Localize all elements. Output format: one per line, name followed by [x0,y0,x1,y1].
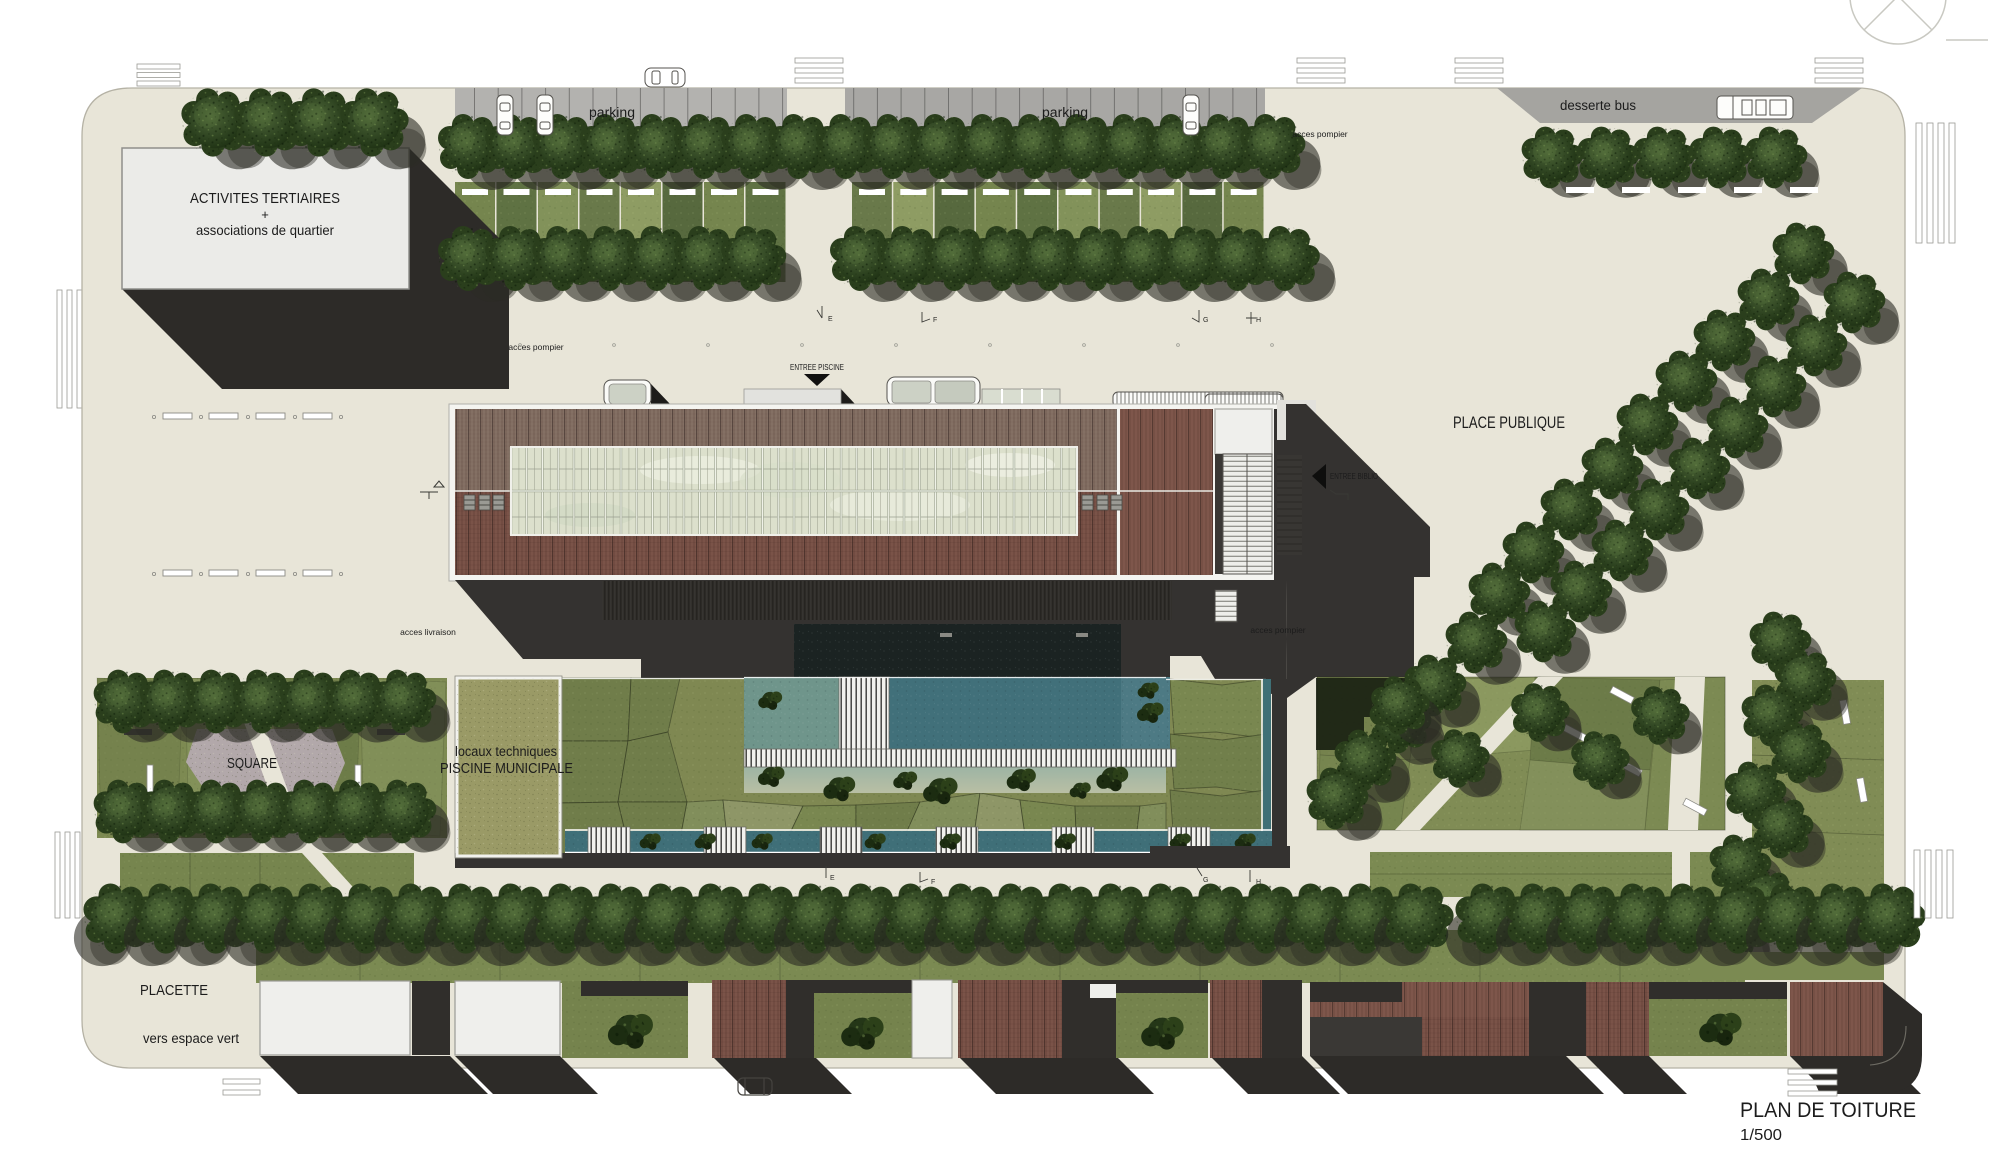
svg-text:parking: parking [589,105,635,120]
svg-text:ENTREE BIBLIO: ENTREE BIBLIO [1330,472,1378,481]
svg-text:vers espace vert: vers espace vert [143,1031,239,1046]
svg-text:G: G [1203,317,1208,324]
svg-text:acces pompier: acces pompier [1250,625,1305,635]
svg-text:associations de quartier: associations de quartier [196,222,334,238]
svg-text:ACTIVITES TERTIAIRES: ACTIVITES TERTIAIRES [190,190,340,207]
svg-text:1/500: 1/500 [1740,1127,1782,1144]
svg-text:acces pompier: acces pompier [508,342,563,352]
svg-text:E: E [830,875,835,882]
svg-text:H: H [1256,317,1261,324]
svg-text:locaux techniques: locaux techniques [455,744,557,759]
svg-text:F: F [931,879,935,886]
svg-text:+: + [261,207,269,222]
svg-text:G: G [1203,877,1208,884]
svg-text:desserte bus: desserte bus [1560,98,1636,113]
svg-text:H: H [1256,879,1261,886]
svg-text:acces pompier: acces pompier [1292,129,1347,139]
svg-text:E: E [828,316,833,323]
svg-text:SQUARE: SQUARE [227,755,277,772]
svg-text:PLACE PUBLIQUE: PLACE PUBLIQUE [1453,413,1565,432]
svg-text:PLACETTE: PLACETTE [140,983,208,999]
svg-text:PLAN DE TOITURE: PLAN DE TOITURE [1740,1098,1916,1122]
svg-text:F: F [933,317,937,324]
svg-text:acces livraison: acces livraison [400,627,456,637]
svg-text:PISCINE MUNICIPALE: PISCINE MUNICIPALE [440,761,573,777]
svg-text:ENTREE PISCINE: ENTREE PISCINE [790,362,844,372]
svg-text:parking: parking [1042,105,1088,120]
